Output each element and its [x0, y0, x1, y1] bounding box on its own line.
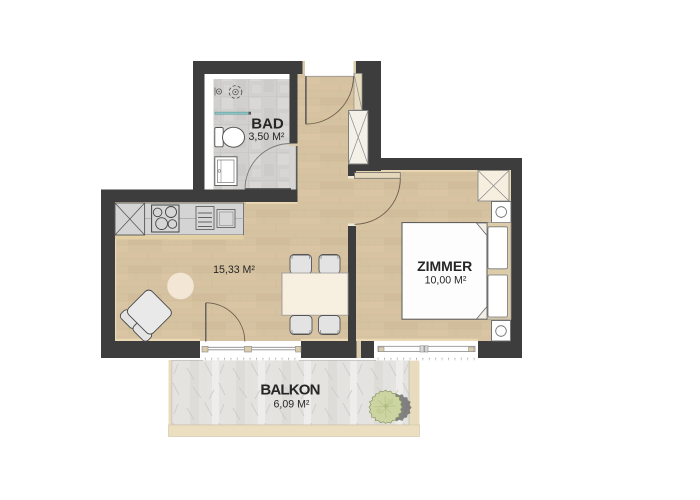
svg-text:BALKON: BALKON: [260, 381, 319, 398]
svg-text:10,00 M²: 10,00 M²: [425, 274, 467, 286]
svg-text:6,09 M²: 6,09 M²: [274, 398, 310, 410]
svg-text:ZIMMER: ZIMMER: [417, 258, 472, 274]
svg-text:15,33 M²: 15,33 M²: [213, 264, 255, 276]
svg-text:3,50 M²: 3,50 M²: [249, 131, 285, 143]
